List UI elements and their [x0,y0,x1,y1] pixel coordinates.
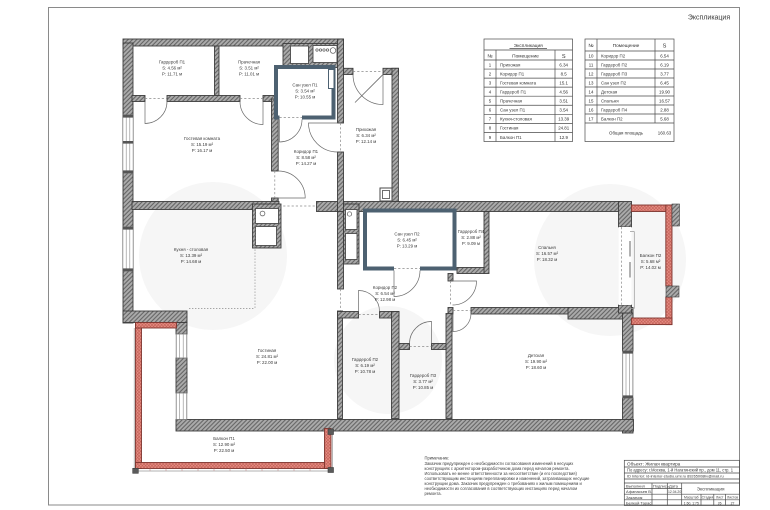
svg-text:Масштаб: Масштаб [684,496,699,500]
svg-text:Спальня: Спальня [601,98,619,103]
svg-text:S: S [562,54,566,60]
svg-text:S: 3.54 м²: S: 3.54 м² [295,89,315,94]
svg-text:Помещение: Помещение [613,43,640,49]
svg-text:Кухня - столовая: Кухня - столовая [174,247,209,252]
svg-text:Гардероб П1: Гардероб П1 [500,90,527,95]
svg-text:P: 10.78 м: P: 10.78 м [355,369,376,374]
svg-text:P: 14.68 м: P: 14.68 м [181,259,202,264]
svg-text:2.88: 2.88 [660,107,669,112]
svg-text:6.19: 6.19 [660,62,669,67]
svg-text:Детская: Детская [528,353,545,358]
svg-text:Кухня-столовая: Кухня-столовая [500,117,532,122]
svg-text:6.45: 6.45 [660,80,669,85]
svg-text:S: 15.19 м²: S: 15.19 м² [191,142,214,147]
svg-text:Гостиная: Гостиная [258,348,277,353]
svg-text:S: S [663,44,667,50]
svg-text:P: 18.32 м: P: 18.32 м [537,257,558,262]
svg-text:По адресу: г.Москва, 1-й Нагат: По адресу: г.Москва, 1-й Нагатинский пр.… [627,468,734,473]
svg-text:10: 10 [589,53,594,58]
svg-text:S: 6.54 м²: S: 6.54 м² [375,291,395,296]
svg-text:P: 9.09 м: P: 9.09 м [462,241,480,246]
svg-text:P: 13.29 м: P: 13.29 м [397,244,418,249]
svg-text:12: 12 [589,71,594,76]
svg-text:11: 11 [589,62,594,67]
svg-text:13.39: 13.39 [558,117,570,122]
svg-text:S: 12.90 м²: S: 12.90 м² [213,442,236,447]
svg-text:Гостевая комната: Гостевая комната [500,80,537,85]
svg-text:6.54: 6.54 [660,53,669,58]
svg-text:P: 16.17 м: P: 16.17 м [192,148,213,153]
svg-text:S: 4.56 м²: S: 4.56 м² [162,66,182,71]
svg-text:необходимости их согласовани: необходимости их согласования в соответс… [425,486,578,491]
svg-text:Лист: Лист [716,496,724,500]
svg-text:Гардероб П4: Гардероб П4 [601,107,628,112]
svg-text:Балкон П1: Балкон П1 [213,436,235,441]
svg-text:P: 22.50 м: P: 22.50 м [214,448,235,453]
svg-text:24.81: 24.81 [558,126,570,131]
svg-text:Прихожая: Прихожая [356,127,377,132]
svg-text:№: № [487,54,492,60]
svg-text:17: 17 [589,116,594,121]
svg-text:Балкон П2: Балкон П2 [640,253,662,258]
svg-text:Белкой Тарас: Белкой Тарас [626,501,651,506]
svg-text:Сан узел П2: Сан узел П2 [601,80,627,85]
svg-text:ID Interior: id-interior-stud: ID Interior: id-interior-studio.umi.ru 8… [627,473,724,478]
svg-text:S: 8.58 м²: S: 8.58 м² [296,155,316,160]
svg-text:Гостиная: Гостиная [500,126,519,131]
svg-text:Афанасьев В.: Афанасьев В. [626,489,652,494]
svg-text:P: 14.02 м: P: 14.02 м [640,265,661,270]
svg-text:16.57: 16.57 [659,98,671,103]
svg-text:16: 16 [589,107,594,112]
svg-text:P: 14.27 м: P: 14.27 м [296,161,317,166]
svg-text:Прихожая: Прихожая [500,62,521,67]
svg-text:12.04.20: 12.04.20 [668,490,681,494]
svg-text:S: 19.90 м²: S: 19.90 м² [525,359,548,364]
svg-text:4.56: 4.56 [559,90,568,95]
svg-text:3.51: 3.51 [559,99,568,104]
svg-text:Экспликация: Экспликация [697,487,725,492]
svg-text:S: 16.57 м²: S: 16.57 м² [536,251,559,256]
svg-text:S: 6.19 м²: S: 6.19 м² [355,363,375,368]
svg-text:Гардероб П1: Гардероб П1 [159,60,186,65]
svg-text:Дата: Дата [669,484,679,489]
svg-text:Листов: Листов [727,496,738,500]
svg-text:Балкон П2: Балкон П2 [601,116,623,121]
svg-text:Объект: Жилая квартира: Объект: Жилая квартира [627,462,681,467]
svg-text:S: 3.77 м²: S: 3.77 м² [413,379,433,384]
svg-text:Гардероб П4: Гардероб П4 [458,229,485,234]
svg-text:Подпись: Подпись [653,484,669,489]
svg-text:S: 6.45 м²: S: 6.45 м² [397,238,417,243]
svg-text:1:60, 1:75: 1:60, 1:75 [684,501,699,505]
svg-text:S: 5.68 м²: S: 5.68 м² [641,259,661,264]
svg-text:Спальня: Спальня [538,245,556,250]
svg-text:S: 2.88 м²: S: 2.88 м² [461,235,481,240]
svg-text:26: 26 [718,501,722,505]
svg-text:Прачечная: Прачечная [238,60,261,65]
svg-text:15: 15 [589,98,594,103]
svg-text:Сан узел П1: Сан узел П1 [292,83,318,88]
svg-text:Заказчик: Заказчик [626,495,643,500]
svg-text:Примечание:: Примечание: [425,456,450,461]
svg-text:Балкон П1: Балкон П1 [500,135,522,140]
svg-text:S: 13.39 м²: S: 13.39 м² [180,253,203,258]
svg-text:12.9: 12.9 [559,135,568,140]
svg-text:27: 27 [731,501,735,505]
svg-text:15.1: 15.1 [559,80,568,85]
svg-text:Прачечная: Прачечная [500,99,523,104]
svg-text:Коридор П2: Коридор П2 [601,53,626,58]
svg-text:5.68: 5.68 [660,116,669,121]
svg-text:14: 14 [589,89,594,94]
svg-text:P: 10.85 м: P: 10.85 м [413,385,434,390]
svg-text:Выполнил: Выполнил [626,484,646,489]
svg-text:Коридор П1: Коридор П1 [294,149,319,154]
svg-text:19.90: 19.90 [659,89,671,94]
svg-text:13: 13 [589,80,594,85]
svg-text:Экспликация: Экспликация [514,43,543,49]
svg-text:160.63: 160.63 [658,131,672,136]
svg-text:S: 3.51 м²: S: 3.51 м² [239,66,259,71]
svg-text:S: 6.34 м²: S: 6.34 м² [356,133,376,138]
svg-text:P: 12.98 м: P: 12.98 м [375,297,396,302]
svg-text:Сан узел П1: Сан узел П1 [500,108,526,113]
svg-text:Общая площадь: Общая площадь [609,131,644,136]
svg-text:Гостевая комната: Гостевая комната [184,136,221,141]
svg-text:3.54: 3.54 [559,108,568,113]
svg-text:Сан узел П2: Сан узел П2 [394,232,420,237]
svg-text:P: 10.55 м: P: 10.55 м [295,95,316,100]
svg-text:P: 11.01 м: P: 11.01 м [239,72,259,77]
svg-text:P: 22.00 м: P: 22.00 м [257,360,278,365]
svg-text:ремонта.: ремонта. [425,491,442,496]
svg-text:S: 24.81 м²: S: 24.81 м² [256,354,279,359]
svg-text:Гардероб П3: Гардероб П3 [410,373,437,378]
svg-text:Экспликация: Экспликация [688,15,730,22]
svg-text:P: 18.60 м: P: 18.60 м [526,365,547,370]
svg-text:6.34: 6.34 [559,62,568,67]
svg-text:8.5: 8.5 [561,71,568,76]
svg-text:Гардероб П2: Гардероб П2 [352,357,379,362]
svg-text:3.77: 3.77 [660,71,669,76]
svg-text:Гардероб П2: Гардероб П2 [601,62,628,67]
svg-text:Коридор П2: Коридор П2 [373,285,398,290]
svg-text:Детская: Детская [601,89,618,94]
svg-text:Коридор П1: Коридор П1 [500,71,525,76]
svg-text:P: 12.14 м: P: 12.14 м [356,139,377,144]
svg-text:Стадия: Стадия [702,496,714,500]
svg-text:P: 11.71 м: P: 11.71 м [162,72,182,77]
svg-text:№: № [588,43,593,49]
svg-text:Помещение: Помещение [512,54,539,60]
svg-text:Гардероб П3: Гардероб П3 [601,71,628,76]
